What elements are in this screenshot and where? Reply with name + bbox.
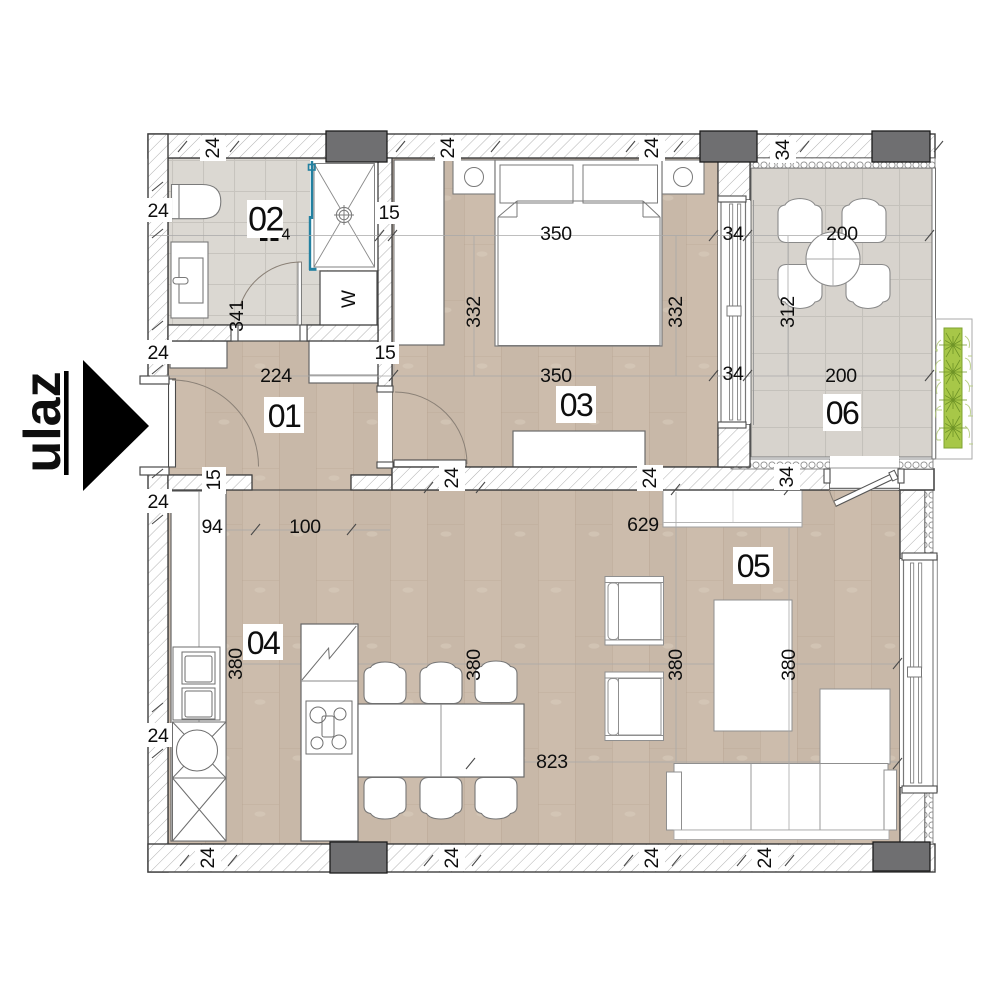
svg-text:224: 224 — [260, 365, 292, 387]
svg-text:15: 15 — [378, 202, 400, 224]
svg-text:24: 24 — [147, 725, 169, 747]
svg-text:03: 03 — [560, 387, 593, 423]
svg-text:350: 350 — [540, 365, 572, 387]
svg-text:332: 332 — [463, 296, 485, 328]
svg-text:24: 24 — [441, 847, 463, 869]
svg-text:02: 02 — [248, 201, 283, 239]
svg-text:24: 24 — [641, 137, 663, 159]
svg-text:34: 34 — [722, 223, 744, 245]
svg-text:ulaz: ulaz — [14, 371, 72, 472]
svg-text:823: 823 — [536, 751, 568, 773]
svg-text:24: 24 — [437, 137, 459, 159]
svg-text:34: 34 — [776, 466, 798, 488]
svg-text:15: 15 — [374, 342, 396, 364]
svg-text:34: 34 — [722, 363, 744, 385]
svg-text:4: 4 — [282, 227, 291, 244]
svg-text:380: 380 — [778, 649, 800, 681]
svg-text:W: W — [339, 290, 360, 308]
svg-text:24: 24 — [441, 467, 463, 489]
svg-text:04: 04 — [247, 625, 280, 661]
svg-text:24: 24 — [754, 847, 776, 869]
svg-text:350: 350 — [540, 223, 572, 245]
svg-text:24: 24 — [147, 491, 169, 513]
svg-text:94: 94 — [201, 516, 223, 538]
svg-text:06: 06 — [826, 395, 859, 431]
svg-text:24: 24 — [639, 467, 661, 489]
svg-text:15: 15 — [203, 469, 225, 491]
svg-text:380: 380 — [463, 649, 485, 681]
svg-text:312: 312 — [777, 296, 799, 328]
svg-text:100: 100 — [289, 516, 321, 538]
svg-text:34: 34 — [772, 139, 794, 161]
svg-text:24: 24 — [147, 342, 169, 364]
svg-text:24: 24 — [641, 847, 663, 869]
svg-text:05: 05 — [737, 548, 770, 584]
svg-text:24: 24 — [197, 847, 219, 869]
svg-text:24: 24 — [202, 137, 224, 159]
svg-text:629: 629 — [627, 514, 659, 536]
svg-text:01: 01 — [268, 398, 301, 434]
svg-text:200: 200 — [825, 365, 857, 387]
svg-text:380: 380 — [665, 649, 687, 681]
svg-text:332: 332 — [665, 296, 687, 328]
svg-text:200: 200 — [826, 223, 858, 245]
svg-text:341: 341 — [226, 300, 248, 332]
svg-text:24: 24 — [147, 200, 169, 222]
